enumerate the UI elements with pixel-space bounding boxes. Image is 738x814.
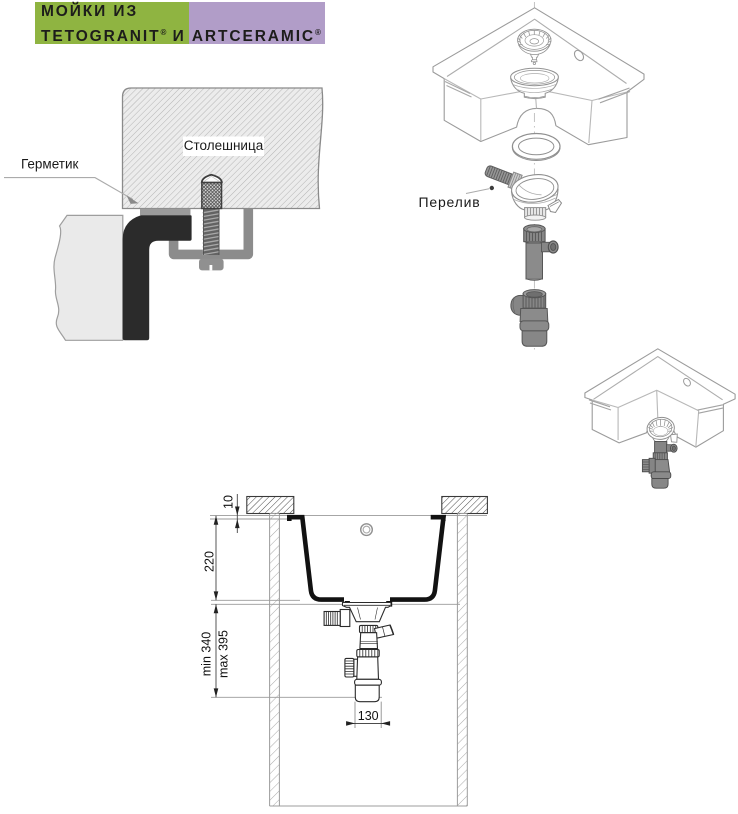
svg-text:Столешница: Столешница	[184, 138, 264, 153]
svg-text:220: 220	[203, 551, 217, 572]
svg-text:10: 10	[222, 495, 236, 509]
svg-text:130: 130	[358, 709, 379, 723]
svg-text:Герметик: Герметик	[21, 157, 78, 172]
svg-text:max 395: max 395	[217, 630, 231, 678]
svg-text:Перелив: Перелив	[419, 194, 481, 210]
svg-text:min 340: min 340	[200, 632, 214, 677]
